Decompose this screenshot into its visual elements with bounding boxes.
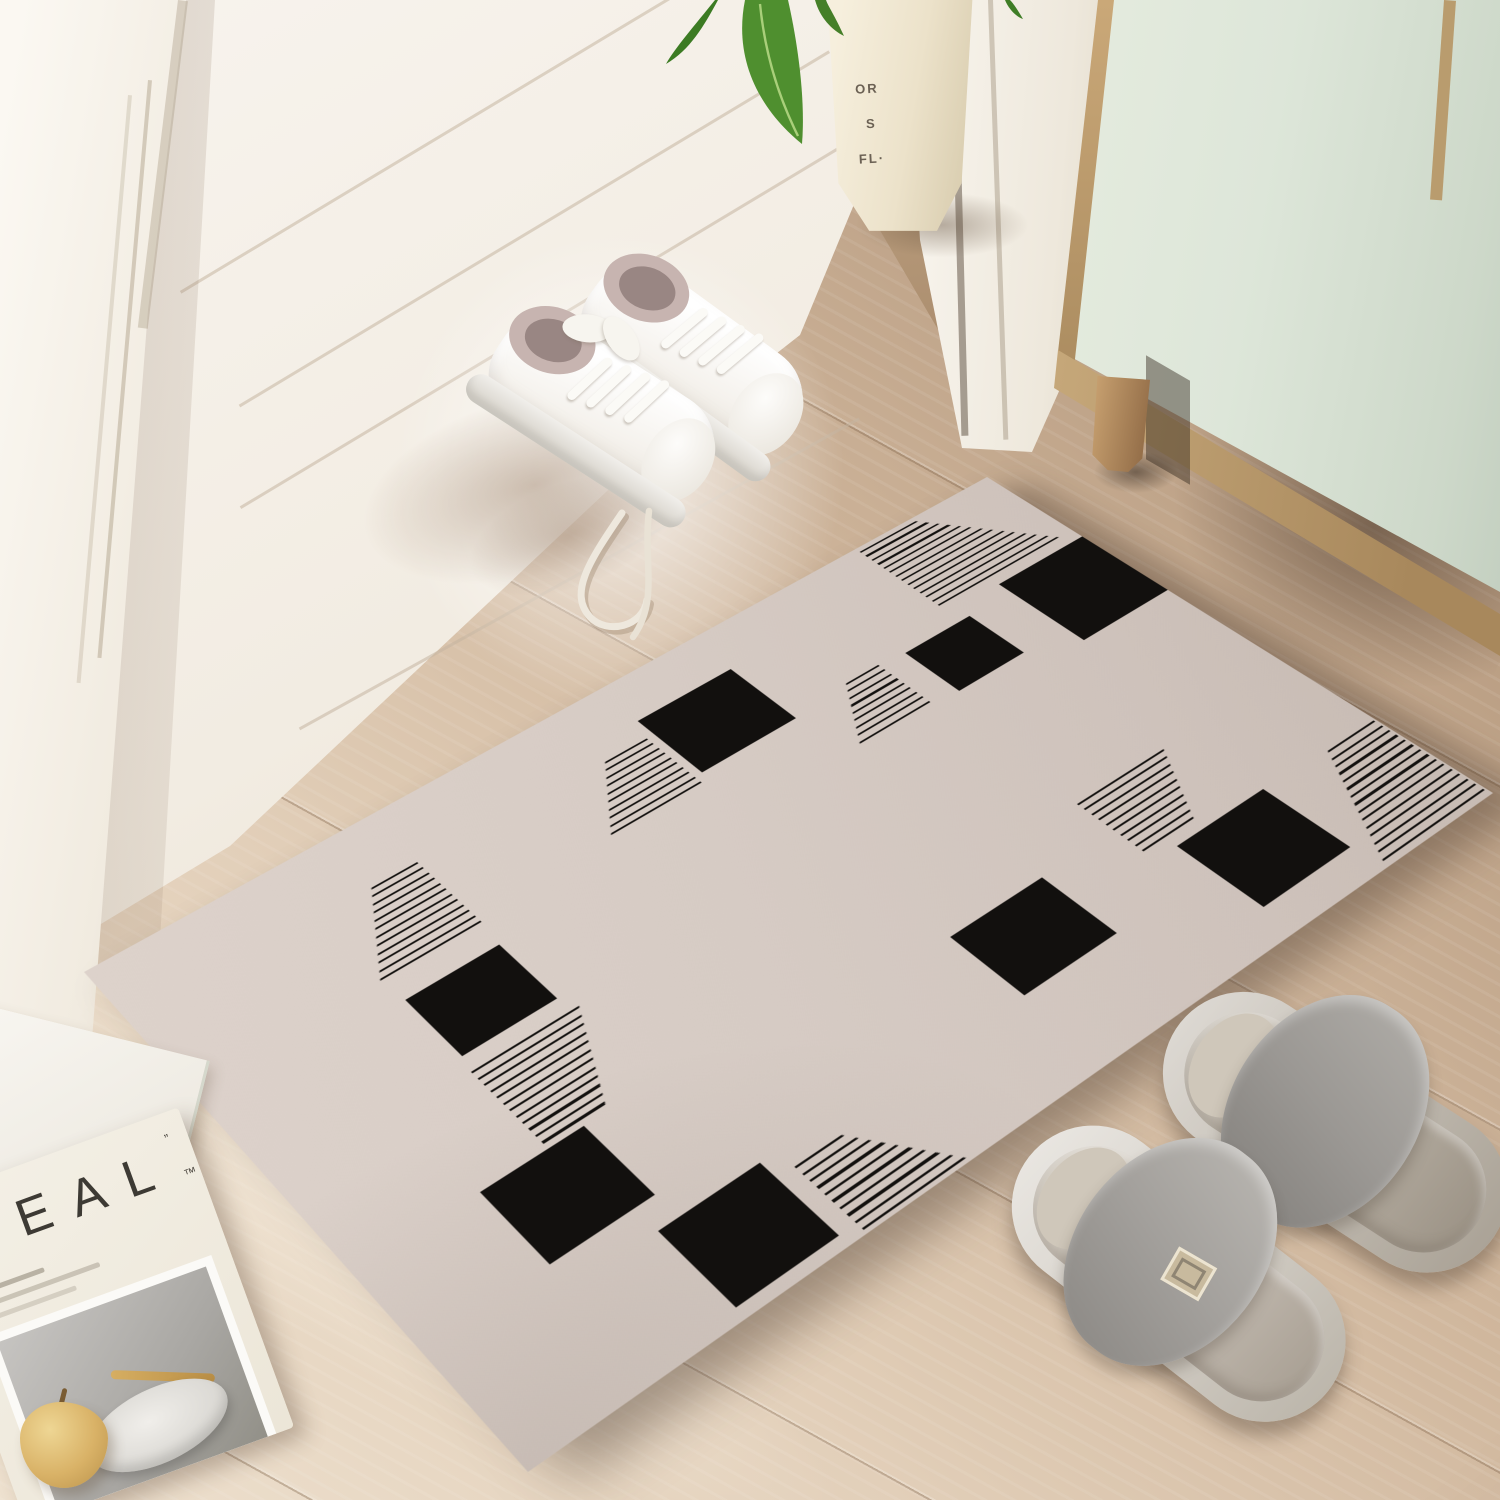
photo-vignette	[0, 0, 1500, 1500]
entryway-doormat-photo: OR S FL·	[0, 0, 1500, 1500]
